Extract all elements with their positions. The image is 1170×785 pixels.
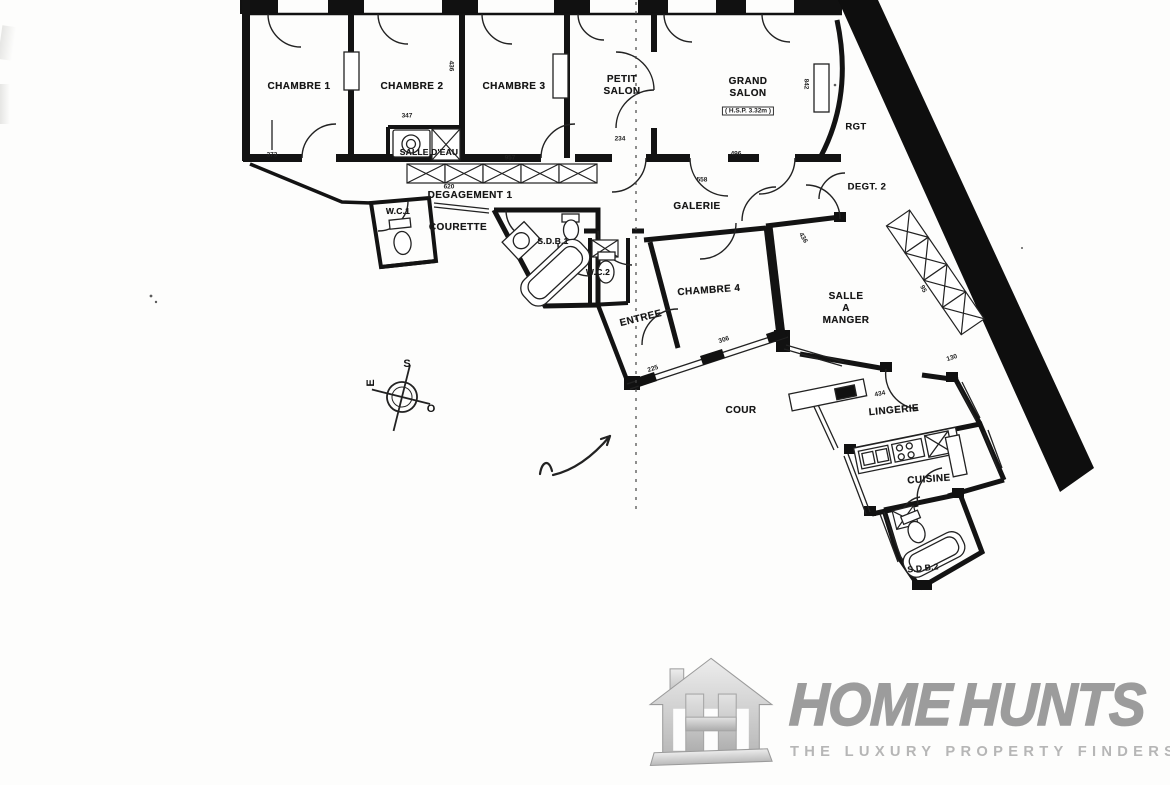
room-label-petit-salon: PETIT SALON	[604, 74, 641, 98]
top-facade	[240, 0, 842, 14]
logo-text: HOMEHUNTS THE LUXURY PROPERTY FINDERS	[790, 682, 1170, 760]
dim-label: 373	[267, 152, 278, 159]
compass-rose	[363, 357, 438, 437]
room-label-rgt: RGT	[845, 121, 866, 132]
room-label-chambre-1: CHAMBRE 1	[267, 81, 330, 93]
room-label-wc-2: W.C.2	[586, 267, 610, 277]
room-label-salle-deau: SALLE D'EAU	[400, 147, 459, 157]
room-label-galerie: GALERIE	[673, 201, 720, 213]
homehunts-logo: HOMEHUNTS THE LUXURY PROPERTY FINDERS	[648, 654, 1170, 780]
logo-tagline: THE LUXURY PROPERTY FINDERS	[790, 743, 1162, 760]
dim-label: 347	[402, 113, 413, 120]
dim-label: 558	[697, 177, 708, 184]
radiator	[814, 64, 829, 112]
windows	[272, 120, 1002, 562]
room-label-chambre-2: CHAMBRE 2	[380, 81, 443, 93]
room-label-sdb-1: S.D.B.1	[537, 236, 568, 246]
logo-brand-hunts: HUNTS	[958, 671, 1146, 738]
logo-brand-home: HOME	[788, 671, 952, 738]
room-label-courette: COURETTE	[429, 222, 487, 234]
dim-label: 496	[731, 151, 742, 158]
wardrobe	[553, 54, 568, 98]
compass-letter-east: E	[365, 379, 377, 386]
logo-brand: HOMEHUNTS	[788, 682, 1139, 729]
room-label-cour: COUR	[725, 405, 756, 417]
sink-icon	[502, 222, 540, 260]
room-label-chambre-3: CHAMBRE 3	[482, 81, 545, 93]
floorplan-scan-page: CHAMBRE 1 CHAMBRE 2 CHAMBRE 3 PETIT SALO…	[0, 0, 1170, 785]
annotation-arrow	[540, 436, 610, 475]
wardrobe	[344, 52, 359, 90]
room-label-salle-a-manger: SALLE A MANGER	[823, 291, 870, 327]
window-mullions	[636, 328, 787, 387]
room-label-wc-1: W.C.1	[386, 206, 410, 216]
room-label-degagement-1: DEGAGEMENT 1	[428, 190, 513, 202]
ceiling-height-note: ( H.S.P. 3.32m )	[722, 107, 774, 116]
dim-label: 957	[505, 155, 516, 162]
compass-letter-south: S	[403, 358, 410, 370]
house-icon	[648, 654, 774, 774]
closet-row	[407, 164, 597, 183]
dim-label: 620	[444, 184, 455, 191]
room-label-degt-2: DEGT. 2	[848, 181, 887, 192]
compass-letter-west: O	[427, 403, 436, 415]
room-label-grand-salon: GRAND SALON	[729, 76, 768, 100]
lingerie-console	[789, 379, 867, 411]
dim-label: 234	[615, 136, 626, 143]
dim-label: 436	[448, 61, 455, 72]
dim-label: 842	[803, 79, 810, 90]
toilet-icon	[389, 218, 414, 256]
